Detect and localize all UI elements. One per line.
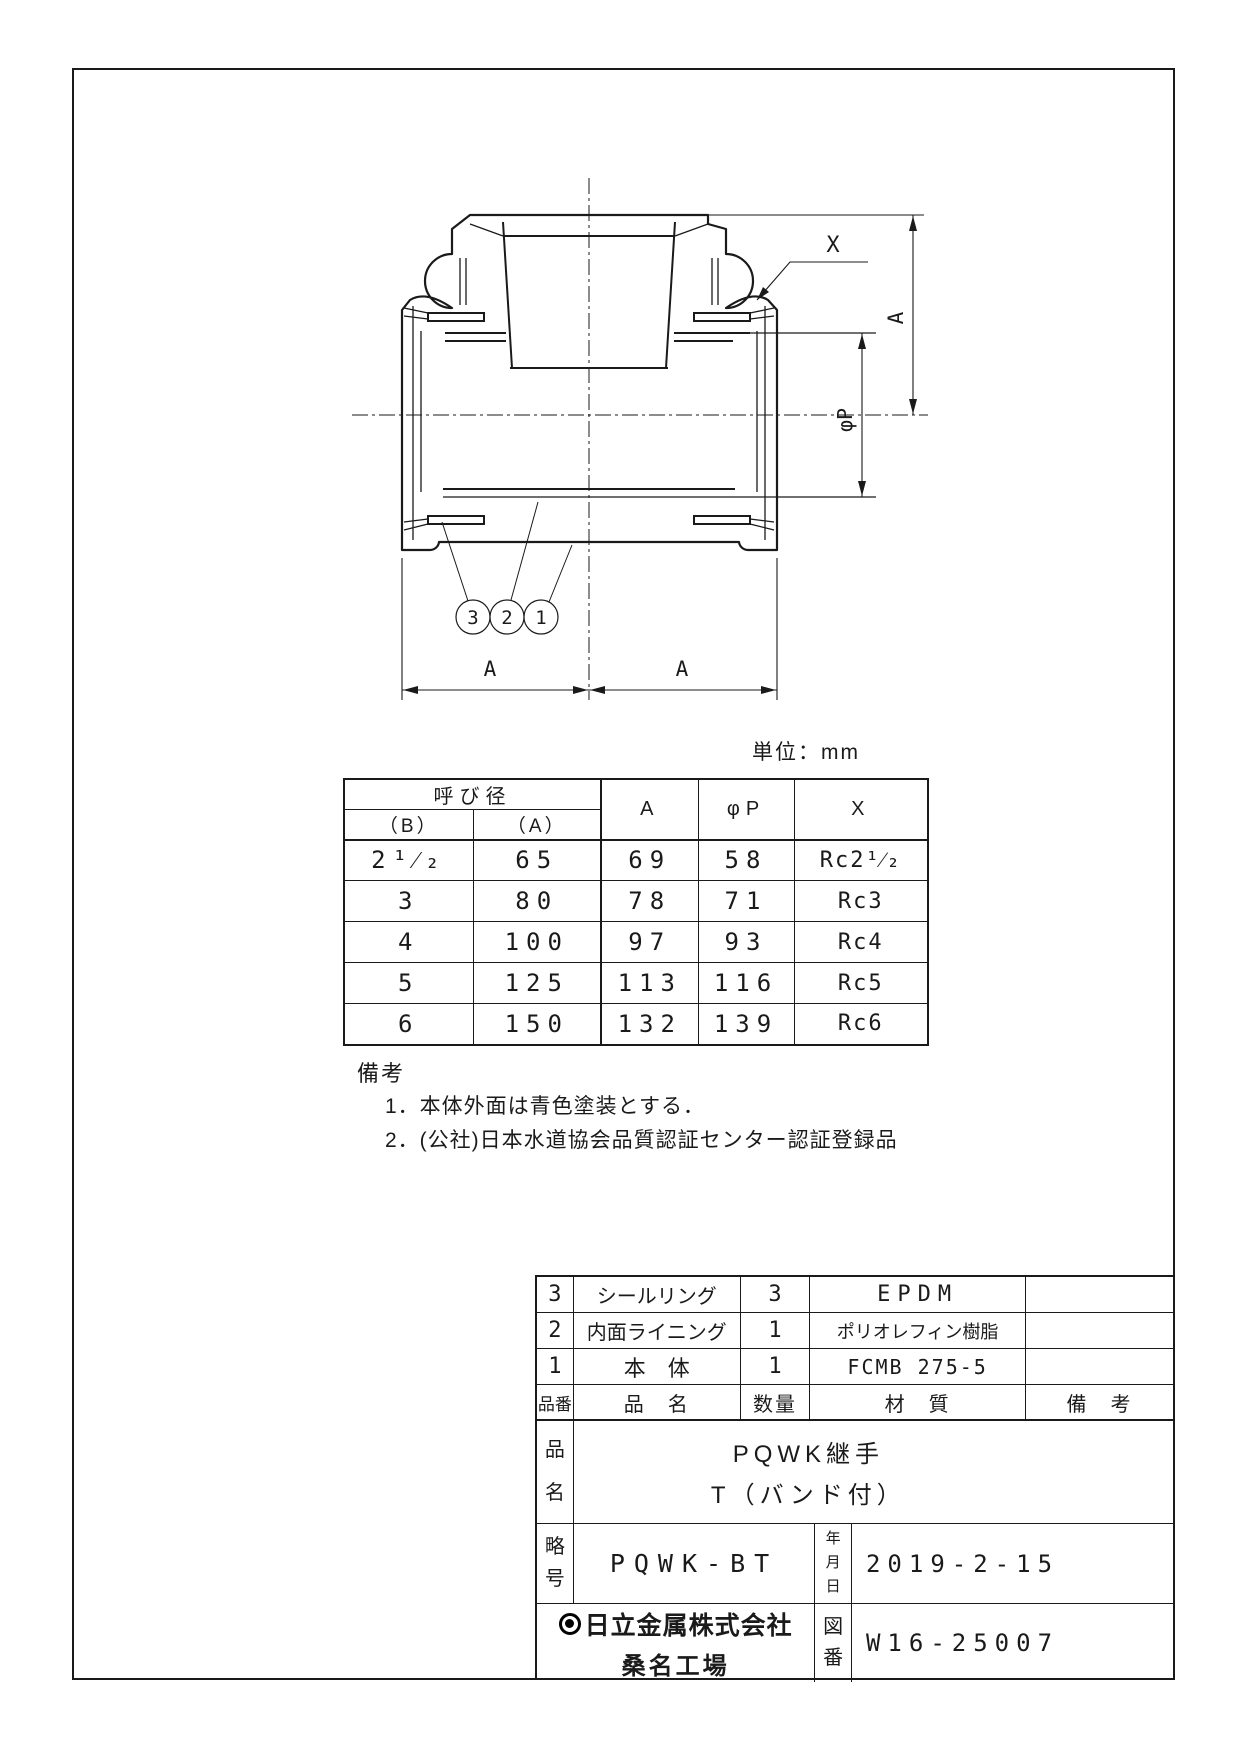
date-label-day: 日	[826, 1578, 841, 1597]
part-no: 1	[537, 1349, 574, 1385]
cell-size-a: 125	[473, 963, 601, 1004]
header-part-qty: 数量	[741, 1385, 811, 1421]
dim-a-center-arrow-left	[573, 686, 588, 694]
note-item-2: 2．(公社)日本水道協会品質認証センター認証登録品	[385, 1124, 898, 1154]
header-x: X	[794, 779, 928, 840]
date-label: 年 月 日	[815, 1524, 852, 1604]
cell-phi-p: 116	[698, 963, 794, 1004]
part-remarks	[1026, 1349, 1173, 1385]
part-no: 2	[537, 1313, 574, 1349]
part-material: ポリオレフィン樹脂	[810, 1313, 1026, 1349]
tee-fitting-section-drawing: X A φP A A 3 2 1	[330, 160, 950, 716]
cell-size-b: 2¹⁄₂	[344, 840, 473, 881]
unit-label: 単位：mm	[620, 736, 860, 766]
company-name: 日立金属株式会社	[585, 1606, 793, 1642]
dim-a-vertical-label: A	[884, 311, 908, 324]
cell-size-a: 80	[473, 881, 601, 922]
product-name-line2: T（バンド付）	[711, 1475, 906, 1510]
part-remarks	[1026, 1313, 1173, 1349]
cell-x: Rc6	[794, 1004, 928, 1045]
dim-a-left-label: A	[484, 657, 497, 681]
cell-x: Rc5	[794, 963, 928, 1004]
header-part-remarks: 備 考	[1026, 1385, 1173, 1421]
company-row: 日立金属株式会社 桑名工場 図 番 W16-25007	[537, 1604, 1173, 1682]
cell-phi-p: 139	[698, 1004, 794, 1045]
header-size-b: （B）	[344, 810, 473, 840]
part-name: シールリング	[574, 1277, 741, 1313]
dim-a-center-arrow-right	[590, 686, 605, 694]
title-block: 3 シールリング 3 EPDM 2 内面ライニング 1 ポリオレフィン樹脂 1 …	[535, 1275, 1175, 1680]
factory-name: 桑名工場	[622, 1646, 730, 1681]
note-item-1: 1．本体外面は青色塗装とする．	[385, 1090, 705, 1120]
header-size-a: （A）	[473, 810, 601, 840]
date-label-year: 年	[826, 1530, 841, 1549]
code-label-top: 略	[545, 1536, 565, 1559]
balloon-2: 2	[501, 607, 512, 629]
parts-row-3: 3 シールリング 3 EPDM	[537, 1277, 1173, 1313]
part-name: 内面ライニング	[574, 1313, 741, 1349]
cell-x: Rc4	[794, 922, 928, 963]
header-part-name: 品 名	[574, 1385, 741, 1421]
dim-a-right-arrow	[761, 686, 776, 694]
dim-phi-p-arrow-down	[858, 481, 866, 496]
product-label-top: 品	[545, 1439, 565, 1462]
part-qty: 3	[741, 1277, 811, 1313]
spec-row: 6 150 132 139 Rc6	[344, 1004, 928, 1045]
cell-dim-a: 132	[601, 1004, 698, 1045]
dim-a-arrow-up	[909, 216, 917, 231]
header-part-material: 材 質	[810, 1385, 1026, 1421]
cell-size-a: 150	[473, 1004, 601, 1045]
cell-size-b: 3	[344, 881, 473, 922]
cell-size-b: 6	[344, 1004, 473, 1045]
x-callout-label: X	[826, 233, 840, 258]
spec-row: 3 80 78 71 Rc3	[344, 881, 928, 922]
cell-dim-a: 78	[601, 881, 698, 922]
company-name-line: 日立金属株式会社	[559, 1606, 793, 1642]
dim-phi-p-label: φP	[833, 408, 857, 432]
code-label-bottom: 号	[545, 1568, 565, 1591]
product-code: PQWK-BT	[574, 1524, 815, 1604]
header-nominal-diameter: 呼び径	[344, 779, 601, 810]
dimension-spec-table: 呼び径 A φP X （B） （A） 2¹⁄₂ 65 69 58 Rc2¹⁄₂ …	[343, 778, 929, 1046]
cell-phi-p: 93	[698, 922, 794, 963]
product-name-line1: PQWK継手	[733, 1434, 884, 1469]
product-label-bottom: 名	[545, 1482, 565, 1505]
dim-a-arrow-down	[909, 399, 917, 414]
drawing-no-label-top: 図	[823, 1616, 843, 1639]
parts-row-1: 1 本 体 1 FCMB 275-5	[537, 1349, 1173, 1385]
header-part-no: 品番	[537, 1385, 574, 1421]
cell-phi-p: 71	[698, 881, 794, 922]
cell-x: Rc3	[794, 881, 928, 922]
cell-dim-a: 97	[601, 922, 698, 963]
spec-row: 4 100 97 93 Rc4	[344, 922, 928, 963]
parts-row-2: 2 内面ライニング 1 ポリオレフィン樹脂	[537, 1313, 1173, 1349]
product-name-label: 品 名	[537, 1421, 574, 1524]
drawing-sheet: X A φP A A 3 2 1 単位：mm	[0, 0, 1240, 1755]
notes-title: 備考	[357, 1056, 405, 1088]
drawing-no-label-bottom: 番	[823, 1647, 843, 1670]
cell-dim-a: 69	[601, 840, 698, 881]
dim-phi-p-arrow-up	[858, 334, 866, 349]
product-name-row: 品 名 PQWK継手 T（バンド付）	[537, 1421, 1173, 1524]
hitachi-metals-logo-icon	[559, 1613, 581, 1635]
cell-size-b: 5	[344, 963, 473, 1004]
cell-size-a: 65	[473, 840, 601, 881]
x-callout-leader	[757, 262, 868, 300]
cell-phi-p: 58	[698, 840, 794, 881]
spec-row: 5 125 113 116 Rc5	[344, 963, 928, 1004]
cell-size-a: 100	[473, 922, 601, 963]
date-label-month: 月	[826, 1554, 841, 1573]
parts-header-row: 品番 品 名 数量 材 質 備 考	[537, 1385, 1173, 1421]
cell-dim-a: 113	[601, 963, 698, 1004]
product-name-cell: PQWK継手 T（バンド付）	[574, 1421, 1173, 1524]
part-remarks	[1026, 1277, 1173, 1313]
drawing-no-label: 図 番	[815, 1604, 852, 1682]
part-name: 本 体	[574, 1349, 741, 1385]
drawing-no-value: W16-25007	[852, 1604, 1173, 1682]
balloon-1: 1	[535, 607, 546, 629]
part-qty: 1	[741, 1349, 811, 1385]
cell-x: Rc2¹⁄₂	[794, 840, 928, 881]
part-no: 3	[537, 1277, 574, 1313]
header-phi-p: φP	[698, 779, 794, 840]
code-row: 略 号 PQWK-BT 年 月 日 2019-2-15	[537, 1524, 1173, 1604]
part-material: EPDM	[810, 1277, 1026, 1313]
code-label: 略 号	[537, 1524, 574, 1604]
header-dim-a: A	[601, 779, 698, 840]
dim-a-left-arrow	[403, 686, 418, 694]
dim-a-right-label: A	[676, 657, 689, 681]
cell-size-b: 4	[344, 922, 473, 963]
spec-row: 2¹⁄₂ 65 69 58 Rc2¹⁄₂	[344, 840, 928, 881]
date-value: 2019-2-15	[852, 1524, 1173, 1604]
balloon-3: 3	[467, 607, 478, 629]
part-qty: 1	[741, 1313, 811, 1349]
part-material: FCMB 275-5	[810, 1349, 1026, 1385]
company-cell: 日立金属株式会社 桑名工場	[537, 1604, 815, 1682]
